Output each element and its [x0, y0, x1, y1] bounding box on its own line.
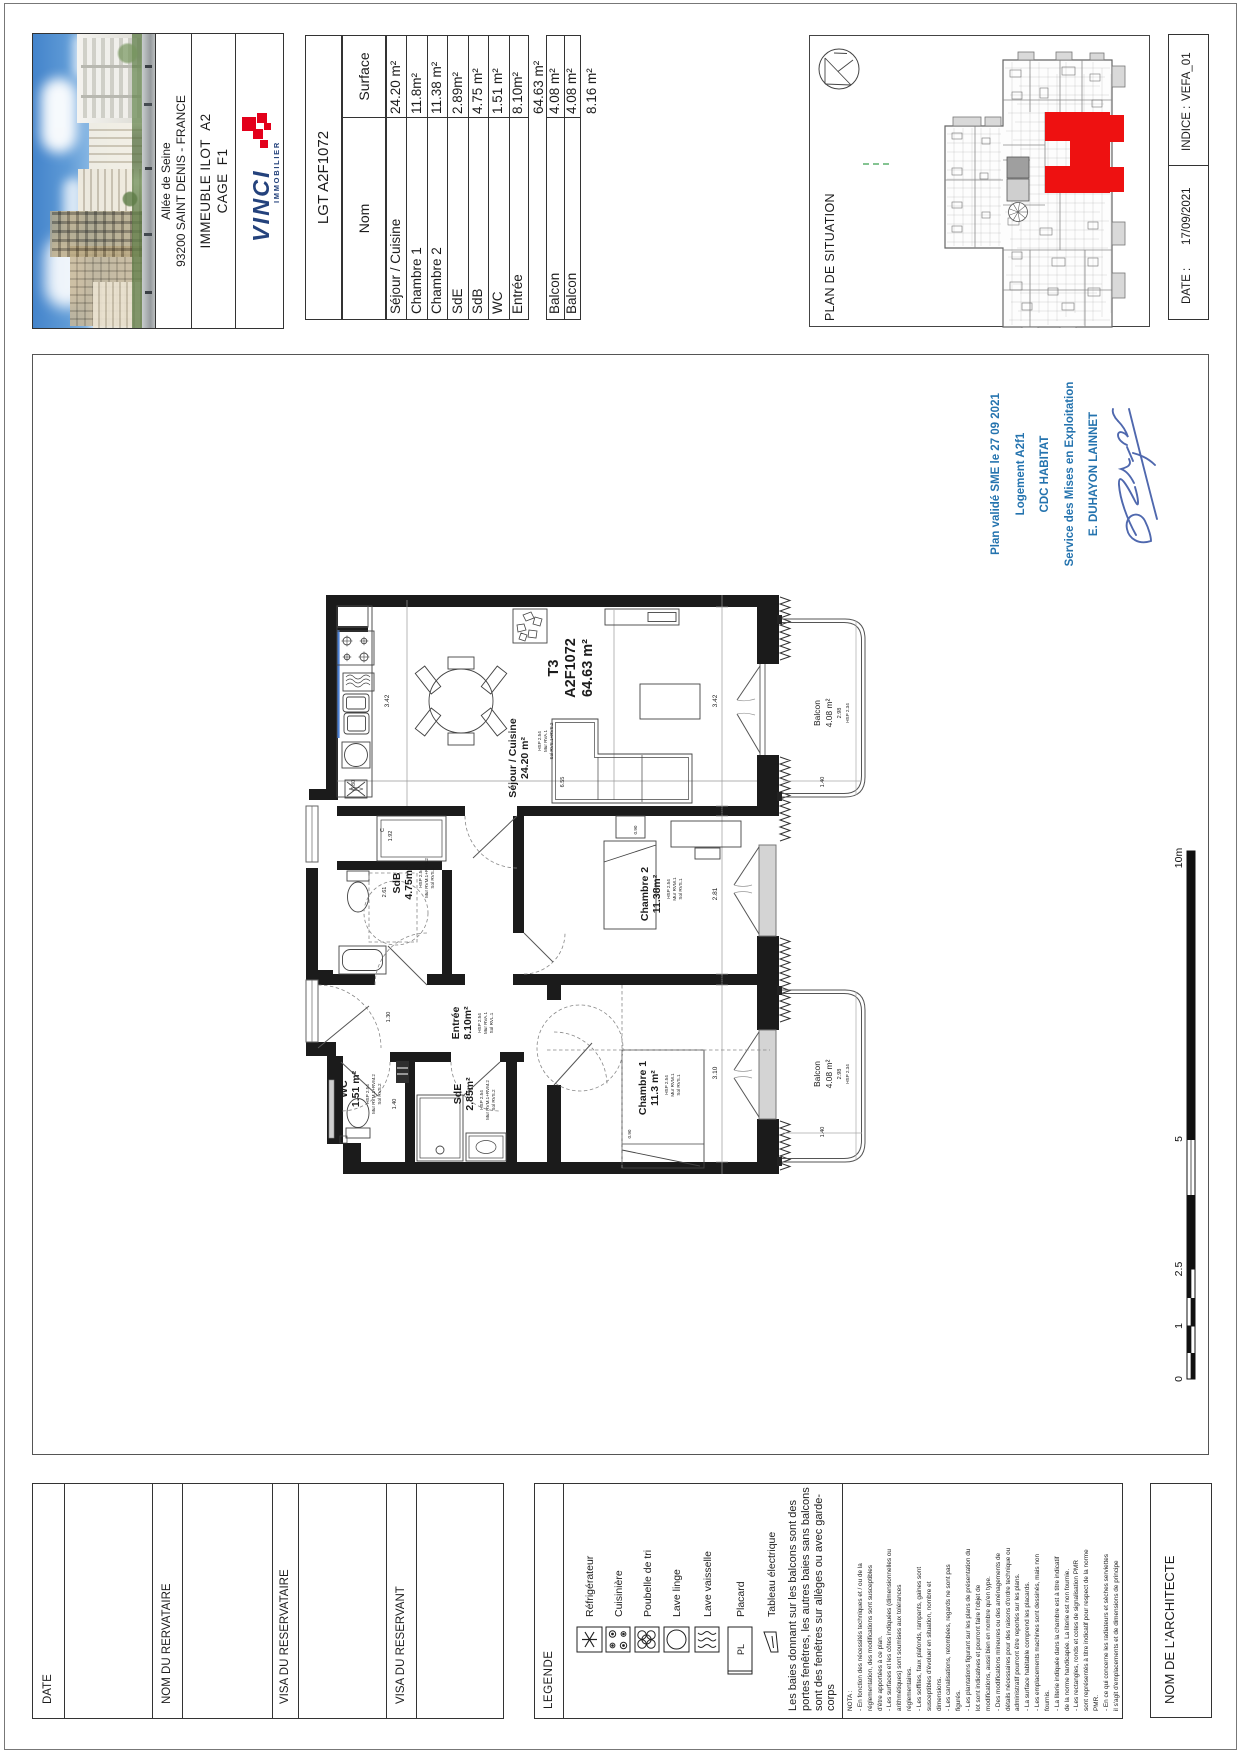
- svg-text:2.5: 2.5: [1173, 1262, 1185, 1277]
- svg-text:6.80: 6.80: [351, 780, 357, 790]
- svg-text:Cuisinière: Cuisinière: [613, 1570, 625, 1617]
- svg-text:Mur RVA.1: Mur RVA.1: [543, 730, 548, 752]
- svg-text:Chambre 2: Chambre 2: [639, 867, 651, 921]
- svg-text:HSP 2.54: HSP 2.54: [537, 731, 542, 751]
- svg-text:Balcon: Balcon: [812, 700, 822, 726]
- svg-text:0.90: 0.90: [633, 825, 638, 834]
- svg-text:C: C: [380, 828, 386, 832]
- svg-text:HSP 2.54: HSP 2.54: [664, 1075, 669, 1095]
- svg-text:Sol RVS.2: Sol RVS.2: [430, 867, 435, 889]
- svg-text:T3: T3: [546, 660, 562, 677]
- svg-text:11.38m²: 11.38m²: [651, 874, 663, 913]
- svg-text:Sol RVL.1: Sol RVL.1: [489, 1012, 494, 1033]
- svg-text:4.08 m²: 4.08 m²: [824, 1059, 834, 1088]
- svg-text:3.42: 3.42: [712, 694, 719, 707]
- svg-text:1.40: 1.40: [820, 1127, 826, 1138]
- svg-text:Mur RVM.1+RVM.2: Mur RVM.1+RVM.2: [424, 858, 429, 898]
- svg-text:HSP 2.54: HSP 2.54: [666, 879, 671, 899]
- svg-text:Placard: Placard: [735, 1581, 747, 1617]
- svg-text:8.10m²: 8.10m²: [462, 1006, 474, 1040]
- svg-text:64.63 m²: 64.63 m²: [580, 639, 596, 697]
- svg-text:10m: 10m: [1173, 848, 1185, 869]
- svg-text:SdE: SdE: [452, 1084, 464, 1104]
- svg-text:WC: WC: [338, 1080, 350, 1098]
- svg-text:IMMOBILIER: IMMOBILIER: [272, 141, 281, 203]
- svg-text:HSP 2.34: HSP 2.34: [845, 703, 850, 723]
- svg-text:Mur RVA.1: Mur RVA.1: [483, 1012, 488, 1034]
- svg-text:0: 0: [1173, 1376, 1185, 1382]
- svg-text:5: 5: [1173, 1136, 1185, 1142]
- svg-text:0.07: 0.07: [719, 975, 724, 984]
- svg-text:1.51 m²: 1.51 m²: [350, 1070, 362, 1107]
- svg-text:Lave linge: Lave linge: [671, 1569, 683, 1617]
- svg-text:HSP 2.54: HSP 2.54: [418, 868, 423, 888]
- svg-text:Sol RVS.1+RVS.2: Sol RVS.1+RVS.2: [549, 722, 554, 759]
- svg-text:2.98: 2.98: [837, 1069, 843, 1080]
- svg-text:Mur RVM.1+RVM.2: Mur RVM.1+RVM.2: [371, 1074, 376, 1114]
- svg-text:6.55: 6.55: [560, 777, 566, 788]
- svg-text:Sol RVS.1: Sol RVS.1: [676, 1074, 681, 1096]
- svg-text:Poubelle de tri: Poubelle de tri: [642, 1550, 654, 1617]
- svg-text:1.92: 1.92: [388, 831, 394, 842]
- svg-text:Séjour / Cuisine: Séjour / Cuisine: [507, 718, 519, 798]
- svg-text:Mur RVM.1+RVM.2: Mur RVM.1+RVM.2: [485, 1080, 490, 1120]
- svg-text:Sol RVS.2: Sol RVS.2: [377, 1083, 382, 1105]
- svg-text:1.40: 1.40: [392, 1099, 398, 1110]
- svg-text:VINCI: VINCI: [248, 169, 274, 240]
- svg-text:24.20 m²: 24.20 m²: [519, 736, 531, 779]
- svg-text:A2F1072: A2F1072: [563, 638, 579, 698]
- svg-text:HSP 2.54: HSP 2.54: [479, 1090, 484, 1110]
- svg-text:Tableau électrique: Tableau électrique: [766, 1532, 778, 1617]
- svg-text:Entrée: Entrée: [450, 1007, 462, 1040]
- svg-text:SdB: SdB: [391, 872, 403, 893]
- svg-text:2.81: 2.81: [712, 887, 719, 900]
- svg-text:11.3 m²: 11.3 m²: [649, 1070, 661, 1106]
- svg-text:HSP 2.34: HSP 2.34: [845, 1064, 850, 1084]
- svg-text:HSP 2.54: HSP 2.54: [365, 1084, 370, 1104]
- svg-text:Lave vaisselle: Lave vaisselle: [702, 1551, 714, 1617]
- svg-text:2.98: 2.98: [837, 708, 843, 719]
- svg-text:PL: PL: [736, 1644, 746, 1655]
- svg-text:1.40: 1.40: [820, 777, 826, 788]
- svg-text:3.10: 3.10: [712, 1066, 719, 1079]
- svg-text:HSP 2.54: HSP 2.54: [477, 1013, 482, 1033]
- svg-text:4.75m²: 4.75m²: [403, 866, 415, 900]
- svg-text:0.07: 0.07: [719, 806, 724, 815]
- svg-text:Balcon: Balcon: [812, 1061, 822, 1087]
- svg-text:Mur RVM.1: Mur RVM.1: [670, 1073, 675, 1097]
- svg-text:Mur RVM.1: Mur RVM.1: [672, 877, 677, 901]
- svg-text:2.61: 2.61: [382, 887, 388, 898]
- svg-text:Sol RVS.1: Sol RVS.1: [678, 878, 683, 900]
- svg-text:2.85m²: 2.85m²: [464, 1077, 476, 1111]
- svg-text:Sol RVS.2: Sol RVS.2: [491, 1089, 496, 1111]
- svg-text:Chambre 1: Chambre 1: [637, 1061, 649, 1115]
- svg-text:1.30: 1.30: [386, 1012, 392, 1023]
- svg-text:4.08 m²: 4.08 m²: [824, 698, 834, 727]
- svg-text:Réfrigérateur: Réfrigérateur: [584, 1555, 596, 1617]
- svg-text:0.90: 0.90: [627, 1129, 632, 1138]
- svg-text:3.42: 3.42: [384, 694, 391, 707]
- svg-text:1: 1: [1173, 1323, 1185, 1329]
